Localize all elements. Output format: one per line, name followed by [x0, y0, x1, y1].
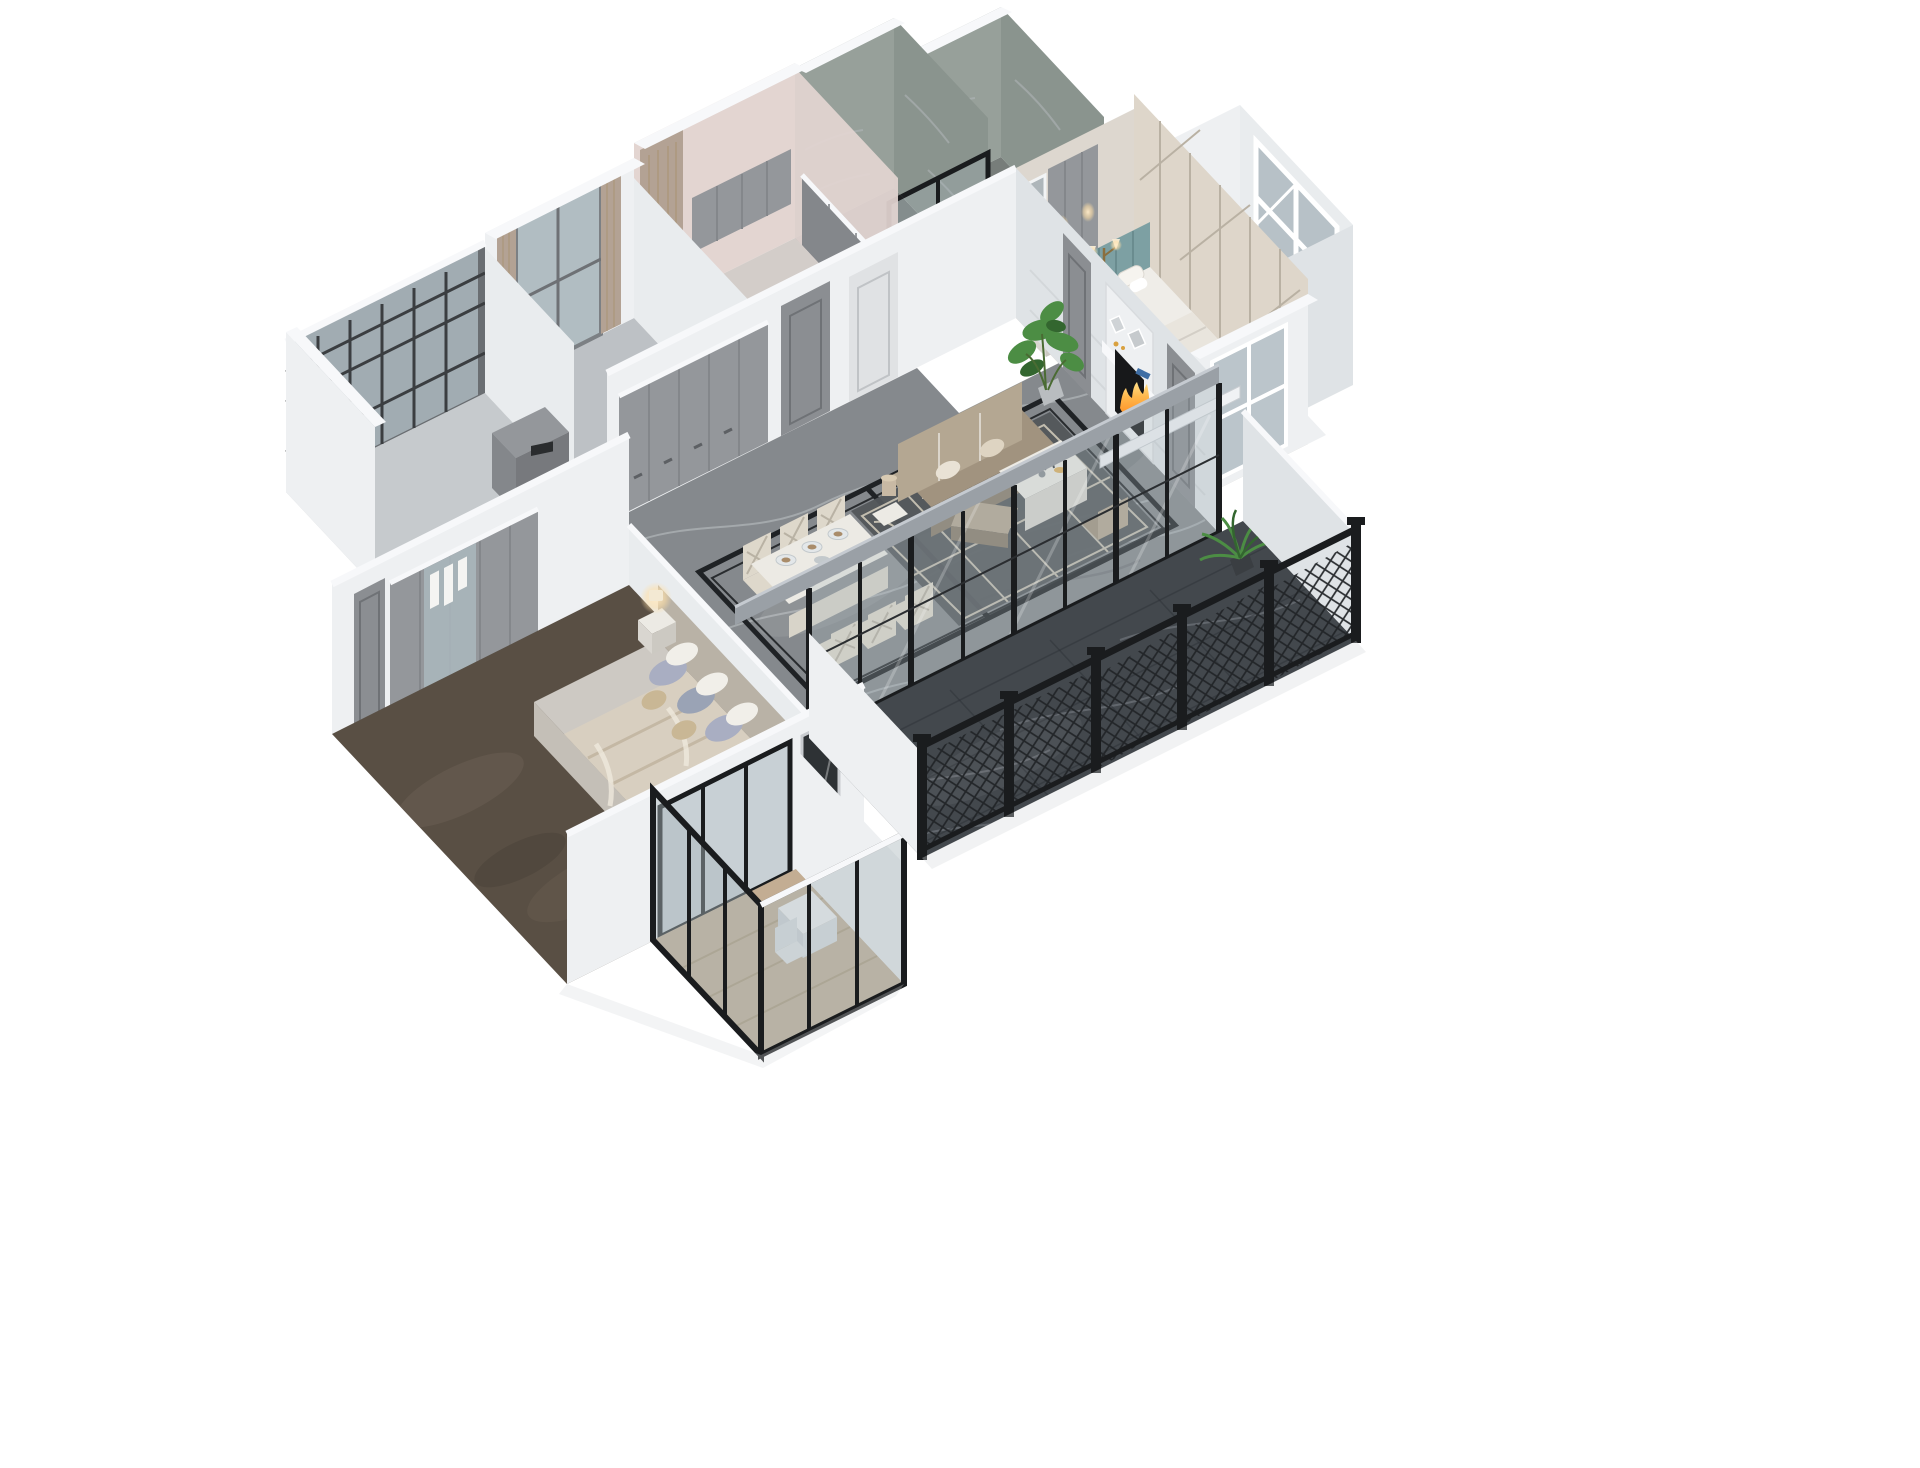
brass-object: [1121, 346, 1125, 350]
hallway-door-1: [781, 281, 830, 436]
hallway-door-2: [849, 252, 898, 402]
wardrobe-light-glow: [1081, 202, 1095, 222]
study-curtain-right: [601, 169, 621, 334]
render-canvas: [0, 0, 1920, 1468]
bedside-lamp-shade: [649, 590, 663, 601]
apartment-cutaway-render: [0, 0, 1920, 1468]
brass-object: [1114, 342, 1119, 347]
master-nightstand: [638, 582, 676, 654]
